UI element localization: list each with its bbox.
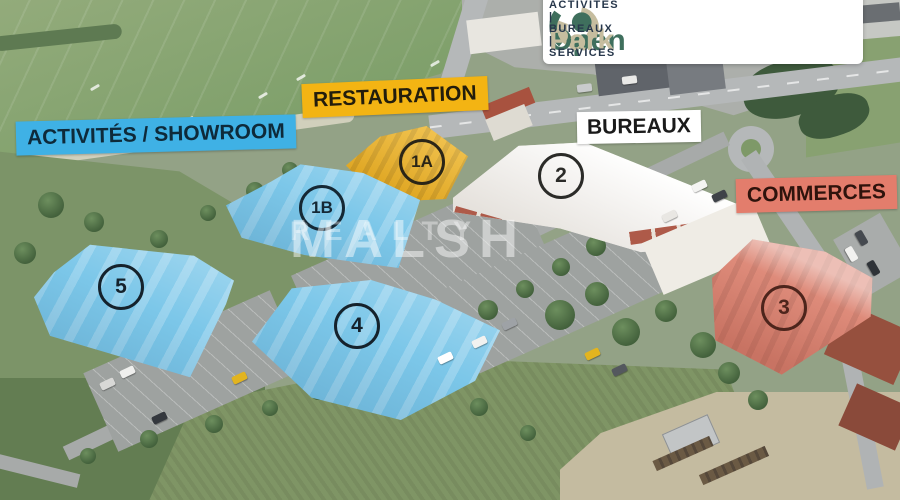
zone-label-commerces: COMMERCES xyxy=(736,175,898,213)
brand-logo-card: OpenPark ACTIVITÉS | BUREAUX | SERVICES xyxy=(543,0,863,64)
tree xyxy=(552,258,570,276)
tree xyxy=(205,415,223,433)
tree xyxy=(470,398,488,416)
tree xyxy=(655,300,677,322)
tree xyxy=(150,230,168,248)
tree xyxy=(84,212,104,232)
tree xyxy=(38,192,64,218)
industrial-roof xyxy=(857,2,900,24)
truck xyxy=(584,347,601,361)
tree xyxy=(516,280,534,298)
tree xyxy=(612,318,640,346)
badge-building-2: 2 xyxy=(538,153,584,199)
badge-building-1a: 1A xyxy=(399,139,445,185)
tree xyxy=(748,390,768,410)
tree xyxy=(545,300,575,330)
watermark-line2: REALTY xyxy=(290,218,486,245)
tree xyxy=(718,362,740,384)
zone-label-bureaux: BUREAUX xyxy=(577,110,701,144)
tree xyxy=(200,205,216,221)
tree xyxy=(585,282,609,306)
brand-tagline: ACTIVITÉS | BUREAUX | SERVICES xyxy=(549,0,619,59)
tree xyxy=(478,300,498,320)
tree xyxy=(690,332,716,358)
tree xyxy=(262,400,278,416)
badge-building-3: 3 xyxy=(761,285,807,331)
tree xyxy=(140,430,158,448)
tree xyxy=(14,242,36,264)
zone-label-activites-showroom: ACTIVITÉS / SHOWROOM xyxy=(16,114,297,155)
tree xyxy=(80,448,96,464)
badge-building-5: 5 xyxy=(98,264,144,310)
badge-building-4: 4 xyxy=(334,303,380,349)
aerial-masterplan: 1A 1B 2 3 4 5 MALSH REALTY ACTIVITÉS / S… xyxy=(0,0,900,500)
tree xyxy=(520,425,536,441)
car xyxy=(577,83,593,93)
